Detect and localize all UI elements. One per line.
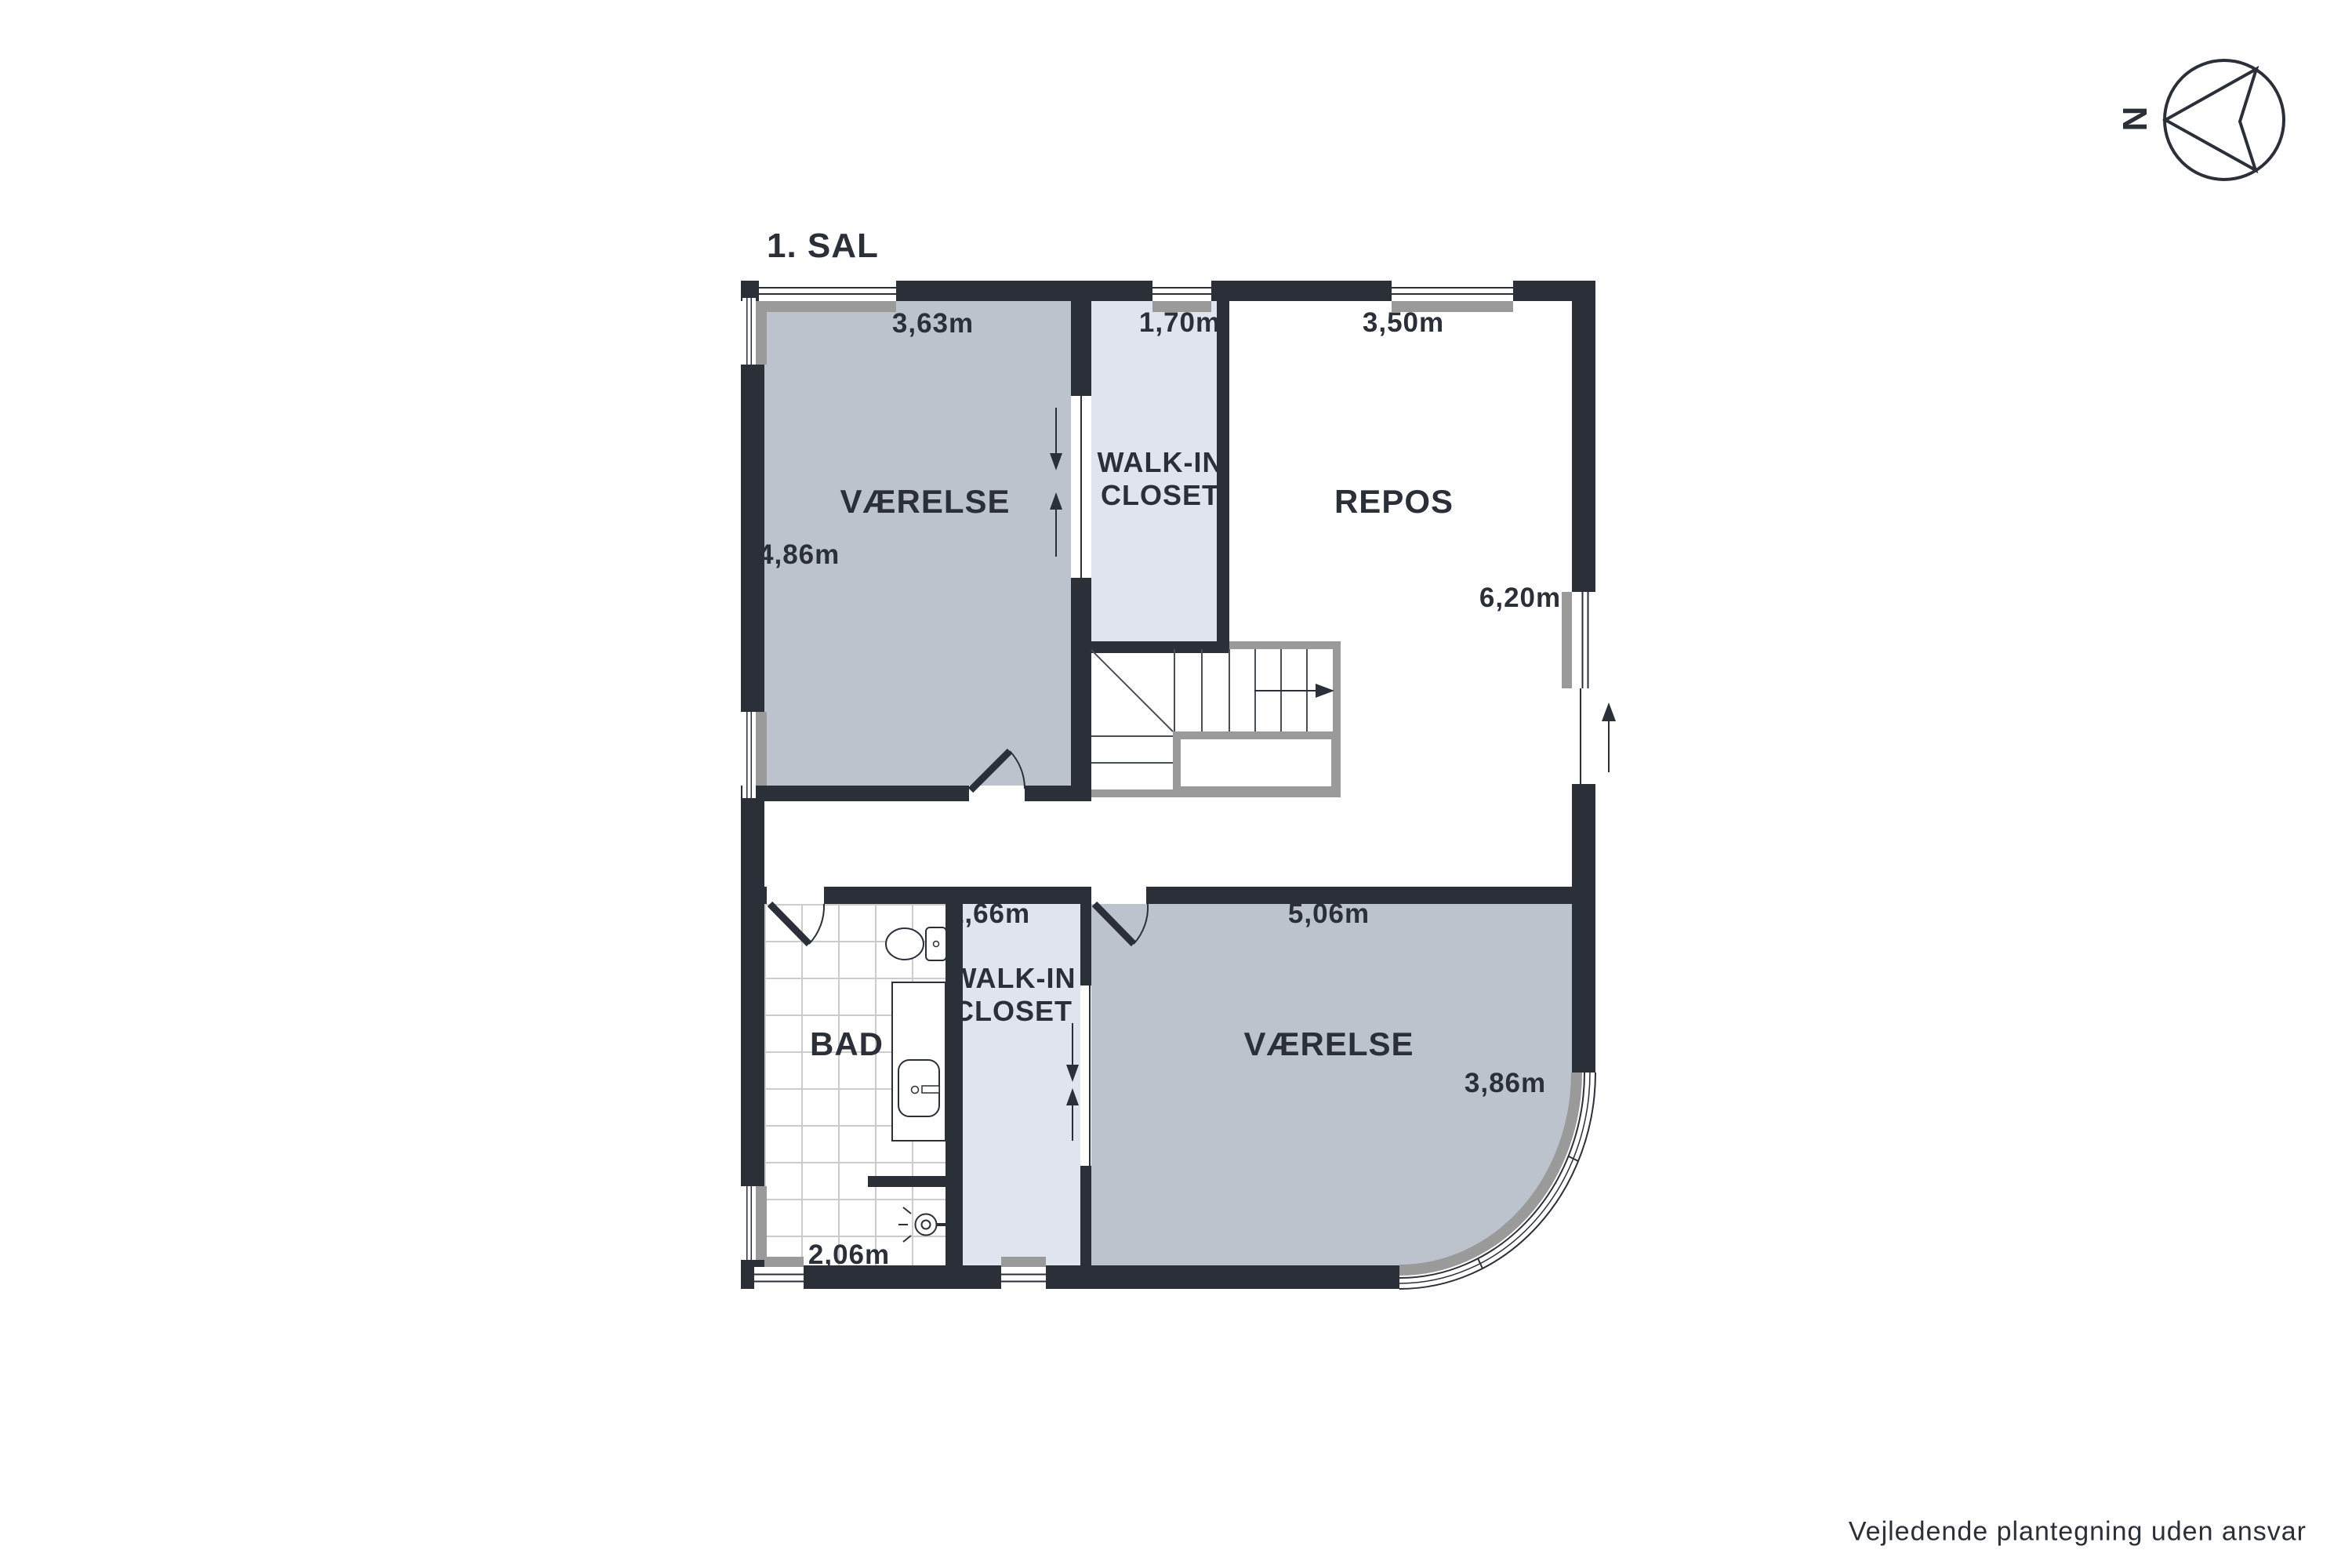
- room-closet2-line1: WALK-IN: [950, 962, 1076, 995]
- dim-vaerelse2-width: 5,06m: [1288, 898, 1370, 930]
- dim-bad-width: 2,06m: [808, 1240, 890, 1271]
- dim-repos-depth: 6,20m: [1479, 583, 1561, 614]
- room-closet1-line2: CLOSET: [1101, 479, 1220, 512]
- disclaimer: Vejledende plantegning uden ansvar: [1849, 1517, 2307, 1548]
- room-closet2-line2: CLOSET: [953, 995, 1073, 1028]
- dim-closet1-width: 1,70m: [1139, 307, 1221, 339]
- dim-repos-width: 3,50m: [1363, 307, 1444, 339]
- dim-vaerelse1-width: 3,63m: [892, 308, 974, 339]
- room-vaerelse1: VÆRELSE: [840, 483, 1010, 521]
- compass-label: N: [2114, 107, 2154, 132]
- floor-plan-page: 1. SAL3,63m1,70m3,50m4,86mVÆRELSEWALK-IN…: [0, 0, 2352, 1568]
- room-vaerelse2: VÆRELSE: [1243, 1025, 1414, 1063]
- labels-layer: 1. SAL3,63m1,70m3,50m4,86mVÆRELSEWALK-IN…: [0, 0, 2352, 1568]
- room-bad: BAD: [810, 1025, 884, 1063]
- dim-vaerelse1-depth: 4,86m: [758, 539, 840, 571]
- dim-closet2-width: 1,66m: [949, 898, 1030, 930]
- dim-vaerelse2-depth: 3,86m: [1465, 1068, 1546, 1099]
- room-closet1-line1: WALK-IN: [1098, 446, 1224, 479]
- room-repos: REPOS: [1334, 483, 1454, 521]
- floor-title: 1. SAL: [767, 227, 879, 266]
